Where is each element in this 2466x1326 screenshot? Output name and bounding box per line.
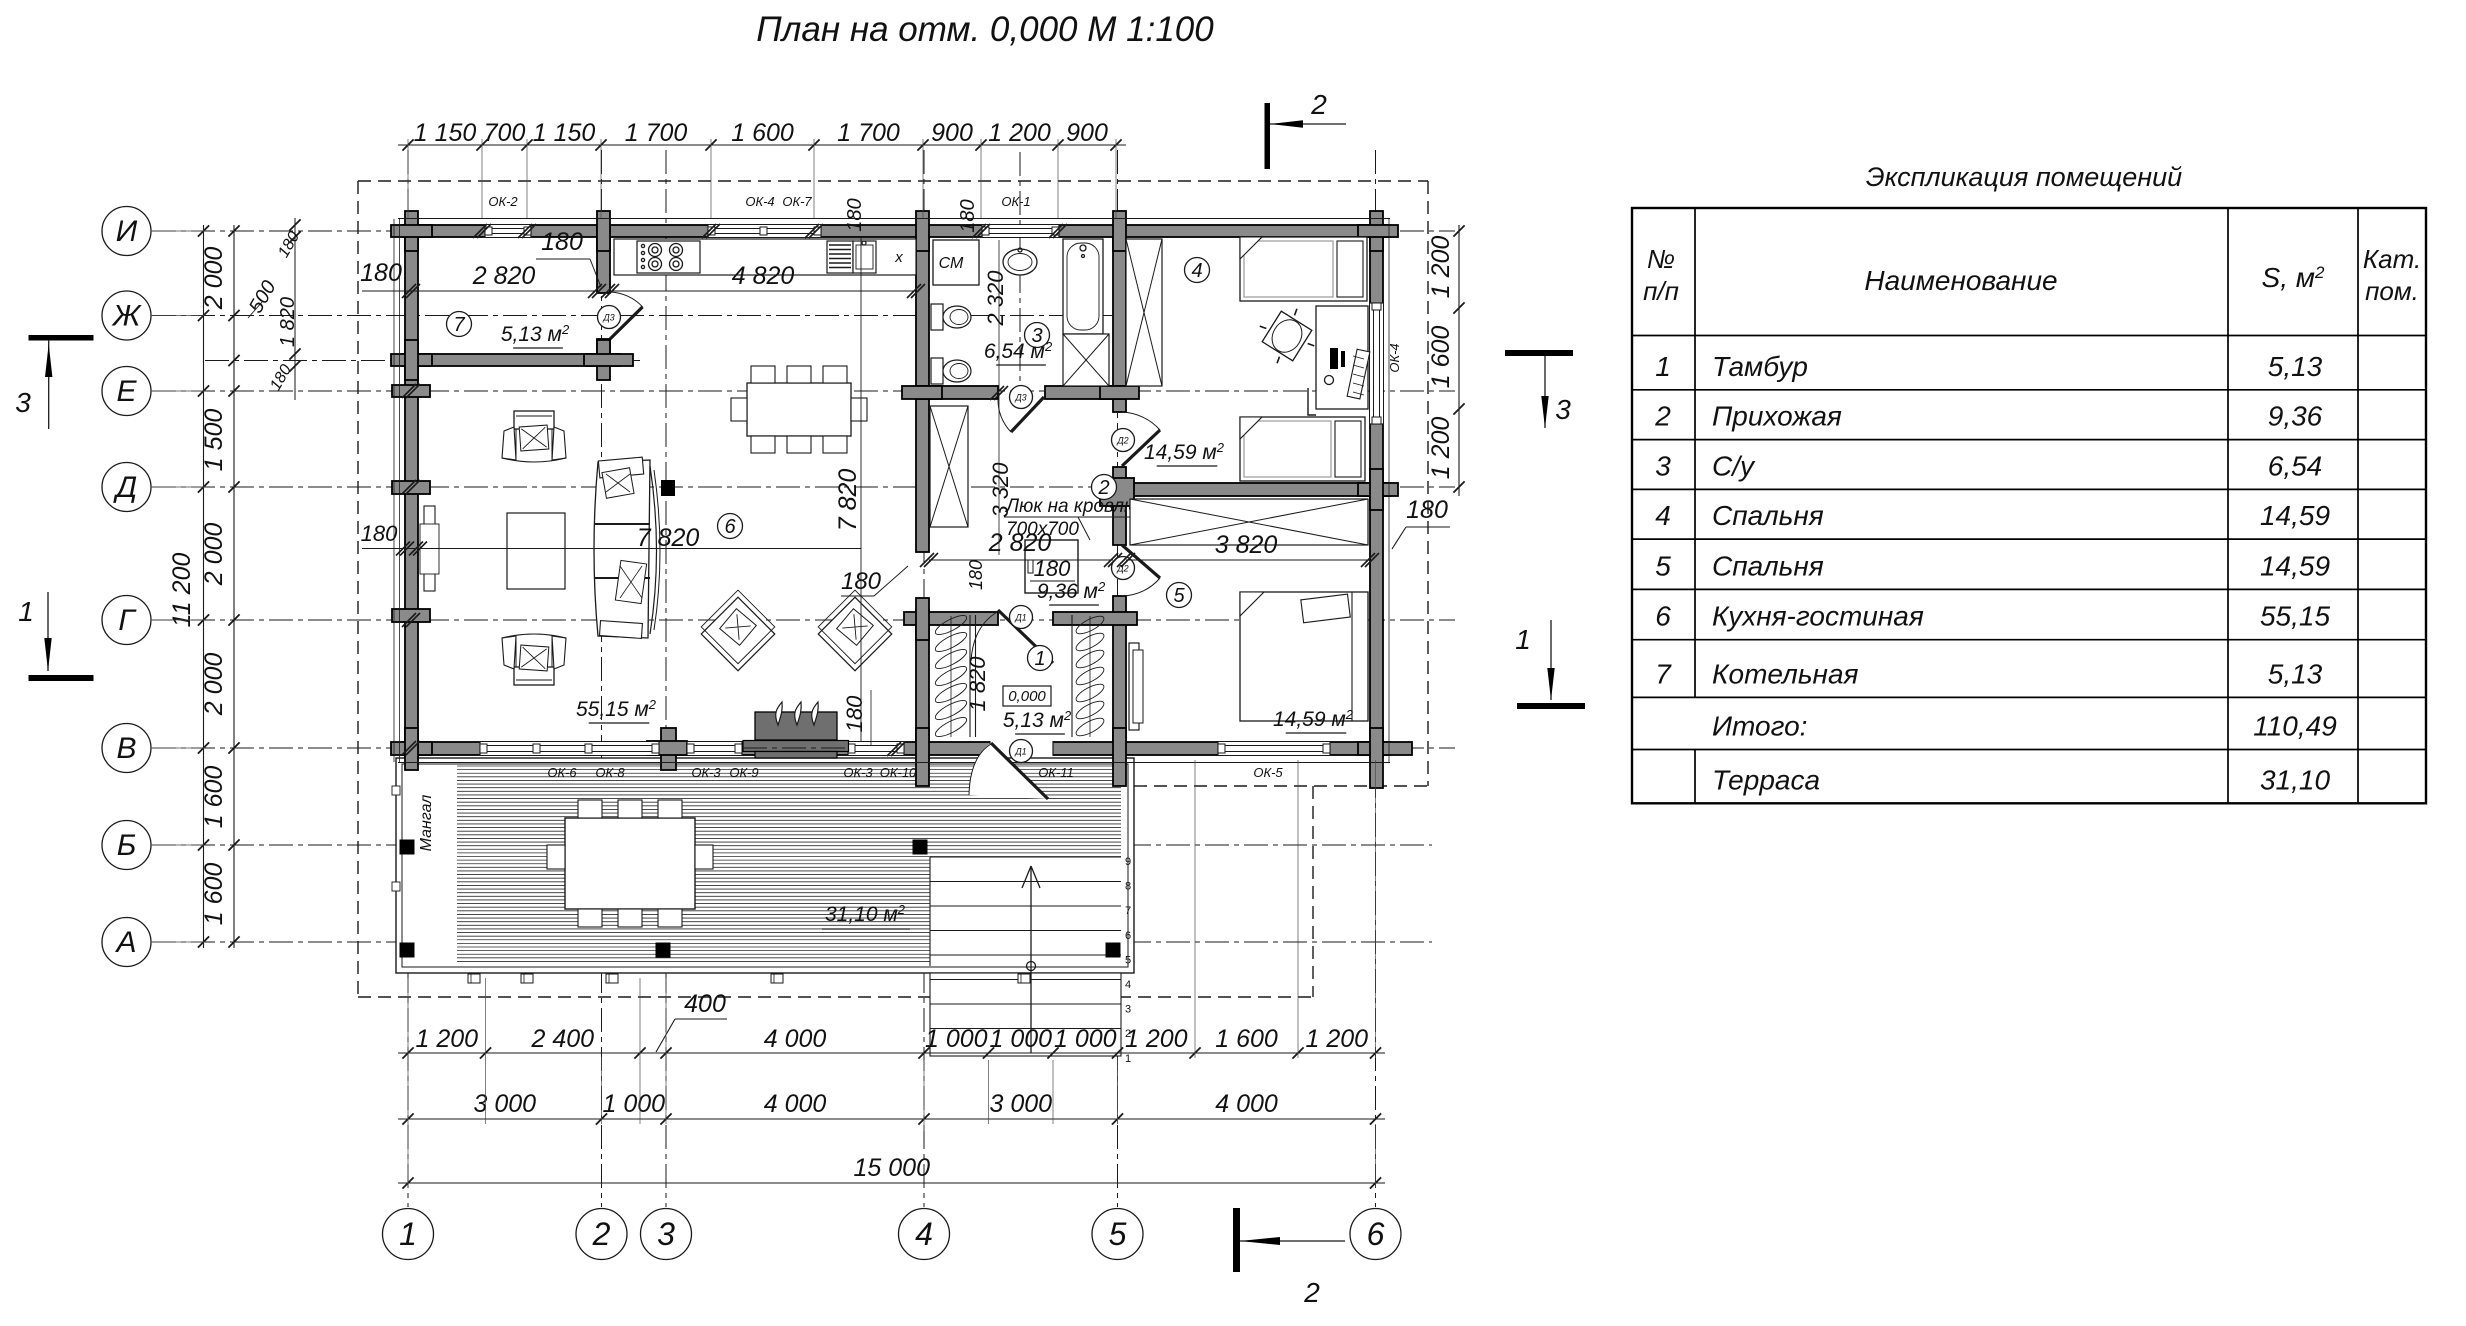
svg-text:1 820: 1 820 (277, 297, 299, 347)
svg-text:1 200: 1 200 (988, 119, 1051, 147)
svg-text:6,54: 6,54 (2268, 450, 2323, 481)
svg-text:Д3: Д3 (1014, 393, 1026, 403)
svg-text:11 200: 11 200 (168, 553, 196, 628)
svg-text:9,36: 9,36 (2268, 401, 2323, 432)
svg-text:7 820: 7 820 (637, 524, 700, 552)
svg-text:31,10: 31,10 (2260, 764, 2330, 795)
svg-text:6: 6 (724, 516, 736, 538)
svg-text:7 820: 7 820 (834, 469, 862, 532)
svg-text:7: 7 (1125, 905, 1131, 917)
svg-text:Спальня: Спальня (1712, 550, 1824, 581)
svg-text:0,000: 0,000 (1008, 688, 1046, 705)
svg-text:2: 2 (1654, 401, 1671, 432)
svg-text:5,13 м2: 5,13 м2 (1003, 708, 1072, 732)
svg-text:2 400: 2 400 (530, 1025, 594, 1053)
svg-text:2: 2 (1303, 1277, 1320, 1308)
svg-text:5,13 м2: 5,13 м2 (501, 322, 570, 346)
svg-text:№: № (1647, 244, 1675, 274)
svg-text:3: 3 (15, 387, 31, 418)
svg-text:2 820: 2 820 (472, 262, 536, 290)
svg-text:4: 4 (1655, 500, 1671, 531)
svg-text:1 600: 1 600 (1215, 1025, 1278, 1053)
svg-text:55,15 м2: 55,15 м2 (576, 697, 657, 721)
svg-text:1 000: 1 000 (925, 1025, 988, 1053)
svg-text:1 600: 1 600 (731, 119, 794, 147)
svg-text:Терраса: Терраса (1712, 764, 1820, 795)
svg-text:Б: Б (117, 829, 137, 862)
svg-text:Экспликация помещений: Экспликация помещений (1866, 162, 2182, 192)
svg-text:ОК-3: ОК-3 (691, 765, 721, 780)
svg-text:Г: Г (118, 604, 137, 637)
svg-text:1: 1 (1034, 648, 1045, 670)
svg-text:А: А (114, 926, 136, 959)
svg-text:31,10 м2: 31,10 м2 (825, 902, 906, 926)
svg-text:И: И (116, 215, 138, 248)
svg-text:180: 180 (361, 521, 398, 546)
svg-text:5,13: 5,13 (2268, 351, 2323, 382)
svg-text:5,13: 5,13 (2268, 658, 2323, 689)
svg-text:Спальня: Спальня (1712, 500, 1824, 531)
svg-text:1 200: 1 200 (415, 1025, 478, 1053)
svg-text:Д: Д (113, 471, 137, 504)
svg-text:Мангал: Мангал (418, 795, 435, 852)
svg-text:3 000: 3 000 (473, 1090, 536, 1118)
svg-text:2 000: 2 000 (200, 247, 228, 311)
svg-text:С/у: С/у (1712, 450, 1756, 481)
svg-text:ОК-3: ОК-3 (843, 765, 873, 780)
svg-text:2: 2 (1310, 89, 1327, 120)
svg-text:Д2: Д2 (1116, 436, 1128, 446)
svg-text:1 500: 1 500 (200, 409, 228, 472)
svg-text:Ж: Ж (111, 300, 142, 333)
svg-text:В: В (116, 732, 136, 765)
svg-text:Итого:: Итого: (1712, 711, 1807, 742)
svg-text:15 000: 15 000 (854, 1154, 931, 1182)
svg-text:ОК-8: ОК-8 (595, 765, 625, 780)
svg-text:180: 180 (842, 695, 867, 732)
svg-text:ОК-6: ОК-6 (547, 765, 577, 780)
svg-text:ОК-2: ОК-2 (488, 194, 518, 209)
svg-text:3: 3 (1555, 394, 1571, 425)
svg-text:900: 900 (931, 119, 973, 147)
svg-text:1: 1 (1515, 624, 1531, 655)
svg-text:7: 7 (453, 314, 465, 336)
svg-text:6: 6 (1125, 930, 1131, 942)
svg-text:14,59 м2: 14,59 м2 (1144, 440, 1225, 464)
svg-text:Люк на кровлю: Люк на кровлю (1004, 496, 1138, 517)
svg-text:Прихожая: Прихожая (1712, 401, 1842, 432)
svg-text:1 600: 1 600 (200, 766, 228, 829)
svg-text:4 000: 4 000 (1215, 1090, 1278, 1118)
svg-text:1 150: 1 150 (414, 119, 477, 147)
svg-text:3: 3 (1655, 450, 1671, 481)
svg-text:5: 5 (1109, 1216, 1127, 1252)
svg-text:2 820: 2 820 (988, 529, 1052, 557)
svg-text:Тамбур: Тамбур (1712, 351, 1808, 382)
svg-text:4 000: 4 000 (764, 1090, 827, 1118)
svg-text:180: 180 (541, 228, 583, 256)
svg-text:4 820: 4 820 (732, 262, 795, 290)
svg-text:1 200: 1 200 (1427, 417, 1455, 480)
svg-text:СМ: СМ (939, 255, 964, 272)
svg-text:4: 4 (1125, 979, 1131, 991)
svg-text:1 000: 1 000 (602, 1090, 665, 1118)
svg-text:ОК-10: ОК-10 (880, 765, 917, 780)
svg-text:14,59: 14,59 (2260, 550, 2330, 581)
svg-text:180: 180 (966, 560, 986, 590)
svg-text:180: 180 (1406, 496, 1448, 524)
svg-text:14,59: 14,59 (2260, 500, 2330, 531)
svg-text:1 200: 1 200 (1125, 1025, 1188, 1053)
svg-text:6: 6 (1655, 601, 1671, 632)
svg-text:3 320: 3 320 (988, 462, 1013, 518)
svg-text:6,54 м2: 6,54 м2 (984, 339, 1053, 363)
svg-text:3: 3 (1125, 1004, 1131, 1016)
svg-text:180: 180 (1034, 556, 1071, 581)
svg-text:Наименование: Наименование (1864, 265, 2057, 296)
svg-text:2 000: 2 000 (200, 523, 228, 587)
svg-text:4: 4 (1191, 260, 1202, 282)
svg-text:1 700: 1 700 (837, 119, 900, 147)
svg-text:4 000: 4 000 (764, 1025, 827, 1053)
svg-text:700: 700 (484, 119, 526, 147)
svg-text:ОК-11: ОК-11 (1038, 765, 1074, 780)
svg-text:ОК-4: ОК-4 (1387, 343, 1402, 372)
svg-text:1 600: 1 600 (1427, 326, 1455, 389)
svg-text:2 320: 2 320 (983, 270, 1008, 327)
svg-text:3: 3 (657, 1216, 675, 1252)
svg-text:8: 8 (1125, 881, 1131, 893)
svg-text:1 820: 1 820 (965, 656, 990, 712)
svg-text:55,15: 55,15 (2260, 601, 2330, 632)
svg-text:1: 1 (18, 596, 34, 627)
svg-text:ОК-5: ОК-5 (1253, 765, 1283, 780)
svg-text:х: х (894, 249, 903, 266)
svg-text:180: 180 (841, 568, 882, 595)
svg-text:1 600: 1 600 (200, 863, 228, 926)
svg-text:1: 1 (399, 1216, 417, 1252)
svg-text:1 200: 1 200 (1305, 1025, 1368, 1053)
svg-text:9: 9 (1125, 856, 1131, 868)
svg-text:Кат.: Кат. (2363, 244, 2421, 274)
svg-text:ОК-1: ОК-1 (1001, 194, 1030, 209)
svg-text:6: 6 (1367, 1216, 1385, 1252)
svg-text:1: 1 (1655, 351, 1671, 382)
svg-text:1 000: 1 000 (1054, 1025, 1117, 1053)
svg-text:900: 900 (1066, 119, 1108, 147)
svg-text:2: 2 (592, 1216, 611, 1252)
svg-text:ОК-9: ОК-9 (729, 765, 758, 780)
svg-text:7: 7 (1655, 658, 1672, 689)
svg-text:Кухня-гостиная: Кухня-гостиная (1712, 601, 1924, 632)
svg-text:Котельная: Котельная (1712, 658, 1859, 689)
svg-text:ОК-7: ОК-7 (782, 194, 812, 209)
svg-text:Е: Е (116, 375, 137, 408)
svg-text:110,49: 110,49 (2253, 711, 2337, 742)
svg-text:4: 4 (915, 1216, 933, 1252)
svg-text:180: 180 (957, 199, 979, 232)
svg-text:Д1: Д1 (1014, 613, 1026, 623)
svg-text:2: 2 (1097, 477, 1109, 499)
svg-text:400: 400 (684, 990, 726, 1018)
svg-text:1 000: 1 000 (989, 1025, 1052, 1053)
svg-text:3 000: 3 000 (989, 1090, 1052, 1118)
svg-text:5: 5 (1655, 550, 1671, 581)
svg-text:Д1: Д1 (1014, 747, 1026, 757)
svg-text:180: 180 (360, 259, 402, 287)
svg-text:1: 1 (1125, 1053, 1131, 1065)
svg-text:5: 5 (1173, 585, 1185, 607)
svg-text:1 200: 1 200 (1427, 236, 1455, 299)
svg-text:п/п: п/п (1643, 276, 1679, 306)
svg-text:3 820: 3 820 (1215, 531, 1278, 559)
svg-text:2 000: 2 000 (200, 653, 228, 717)
svg-text:ОК-4: ОК-4 (745, 194, 774, 209)
svg-text:180: 180 (844, 198, 866, 231)
svg-text:9,36 м2: 9,36 м2 (1037, 579, 1106, 603)
svg-text:пом.: пом. (2365, 276, 2419, 306)
svg-text:1 700: 1 700 (625, 119, 688, 147)
svg-text:1 150: 1 150 (533, 119, 596, 147)
svg-text:5: 5 (1125, 954, 1131, 966)
svg-text:14,59 м2: 14,59 м2 (1273, 707, 1354, 731)
svg-text:Д3: Д3 (602, 313, 614, 323)
svg-text:План на отм. 0,000 М 1:100: План на отм. 0,000 М 1:100 (756, 10, 1214, 49)
